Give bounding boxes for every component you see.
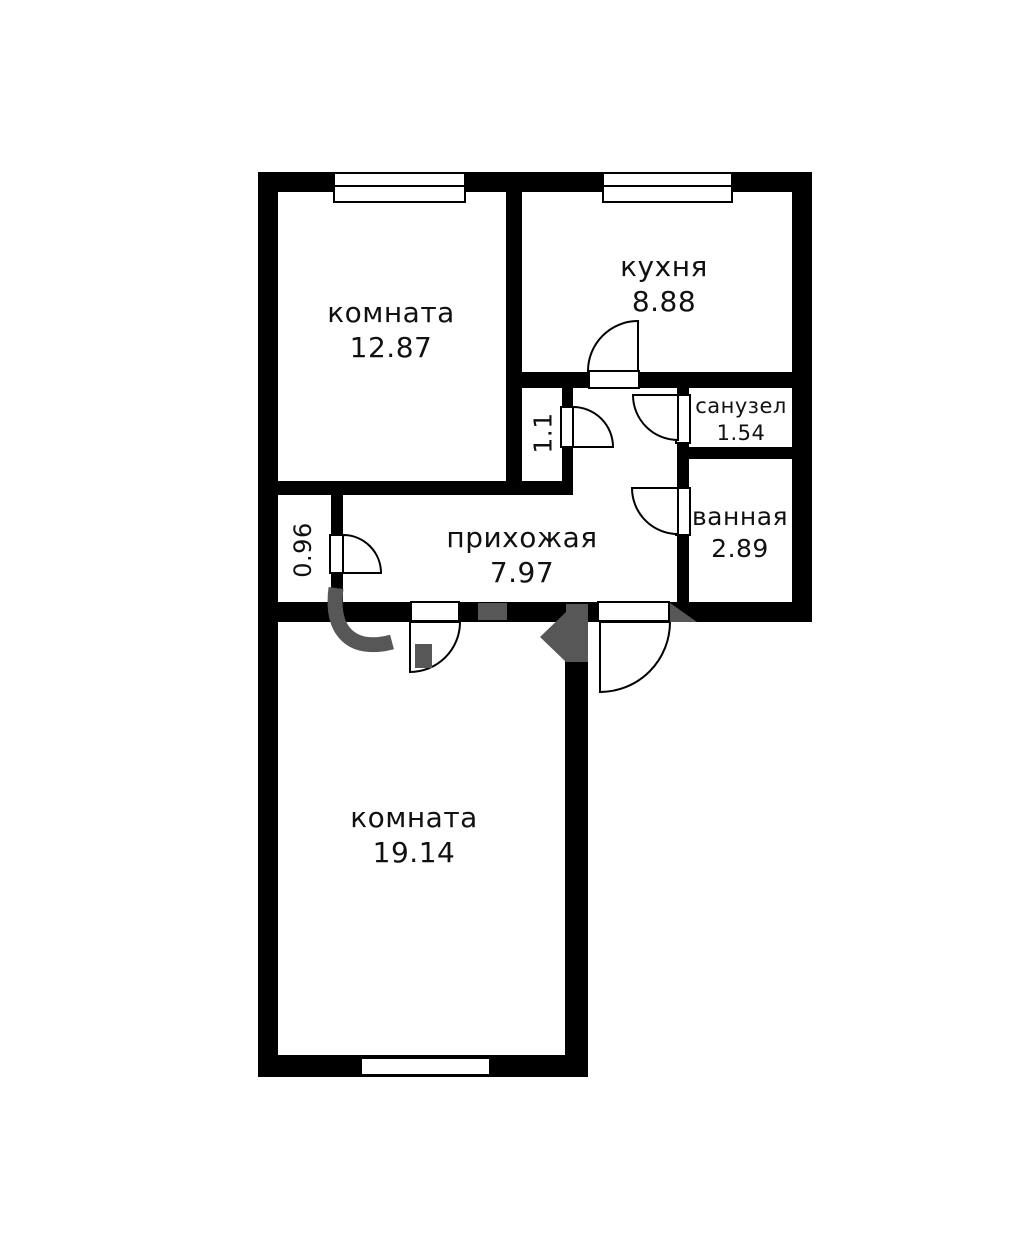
watermark-shape [566, 604, 588, 662]
floor-plan: комната 12.87 кухня 8.88 санузел 1.54 ва… [0, 0, 1010, 1248]
watermark [0, 0, 1010, 1248]
room-label-storage: 0.96 [289, 522, 317, 577]
room-label-room1: комната 12.87 [327, 295, 455, 365]
room-area: 2.89 [692, 533, 788, 565]
watermark-shape [540, 612, 566, 662]
room-label-wc: санузел 1.54 [695, 393, 787, 447]
room-label-room2: комната 19.14 [350, 800, 478, 870]
room-area: 8.88 [620, 284, 708, 319]
room-area: 1.1 [529, 412, 558, 453]
watermark-shape [478, 603, 507, 620]
watermark-shape [335, 588, 392, 645]
room-name: ванная [692, 501, 788, 533]
room-label-kitchen: кухня 8.88 [620, 249, 708, 319]
room-area: 7.97 [446, 555, 597, 590]
room-label-hall: прихожая 7.97 [446, 520, 597, 590]
room-name: санузел [695, 393, 787, 420]
room-label-bath: ванная 2.89 [692, 501, 788, 565]
watermark-shape [670, 603, 697, 622]
room-area: 19.14 [350, 835, 478, 870]
room-label-corridor: 1.1 [529, 412, 558, 453]
room-area: 1.54 [695, 420, 787, 447]
room-area: 12.87 [327, 330, 455, 365]
watermark-shape [415, 644, 432, 668]
room-name: комната [350, 800, 478, 835]
room-name: комната [327, 295, 455, 330]
room-name: кухня [620, 249, 708, 284]
room-name: прихожая [446, 520, 597, 555]
room-area: 0.96 [289, 522, 317, 577]
